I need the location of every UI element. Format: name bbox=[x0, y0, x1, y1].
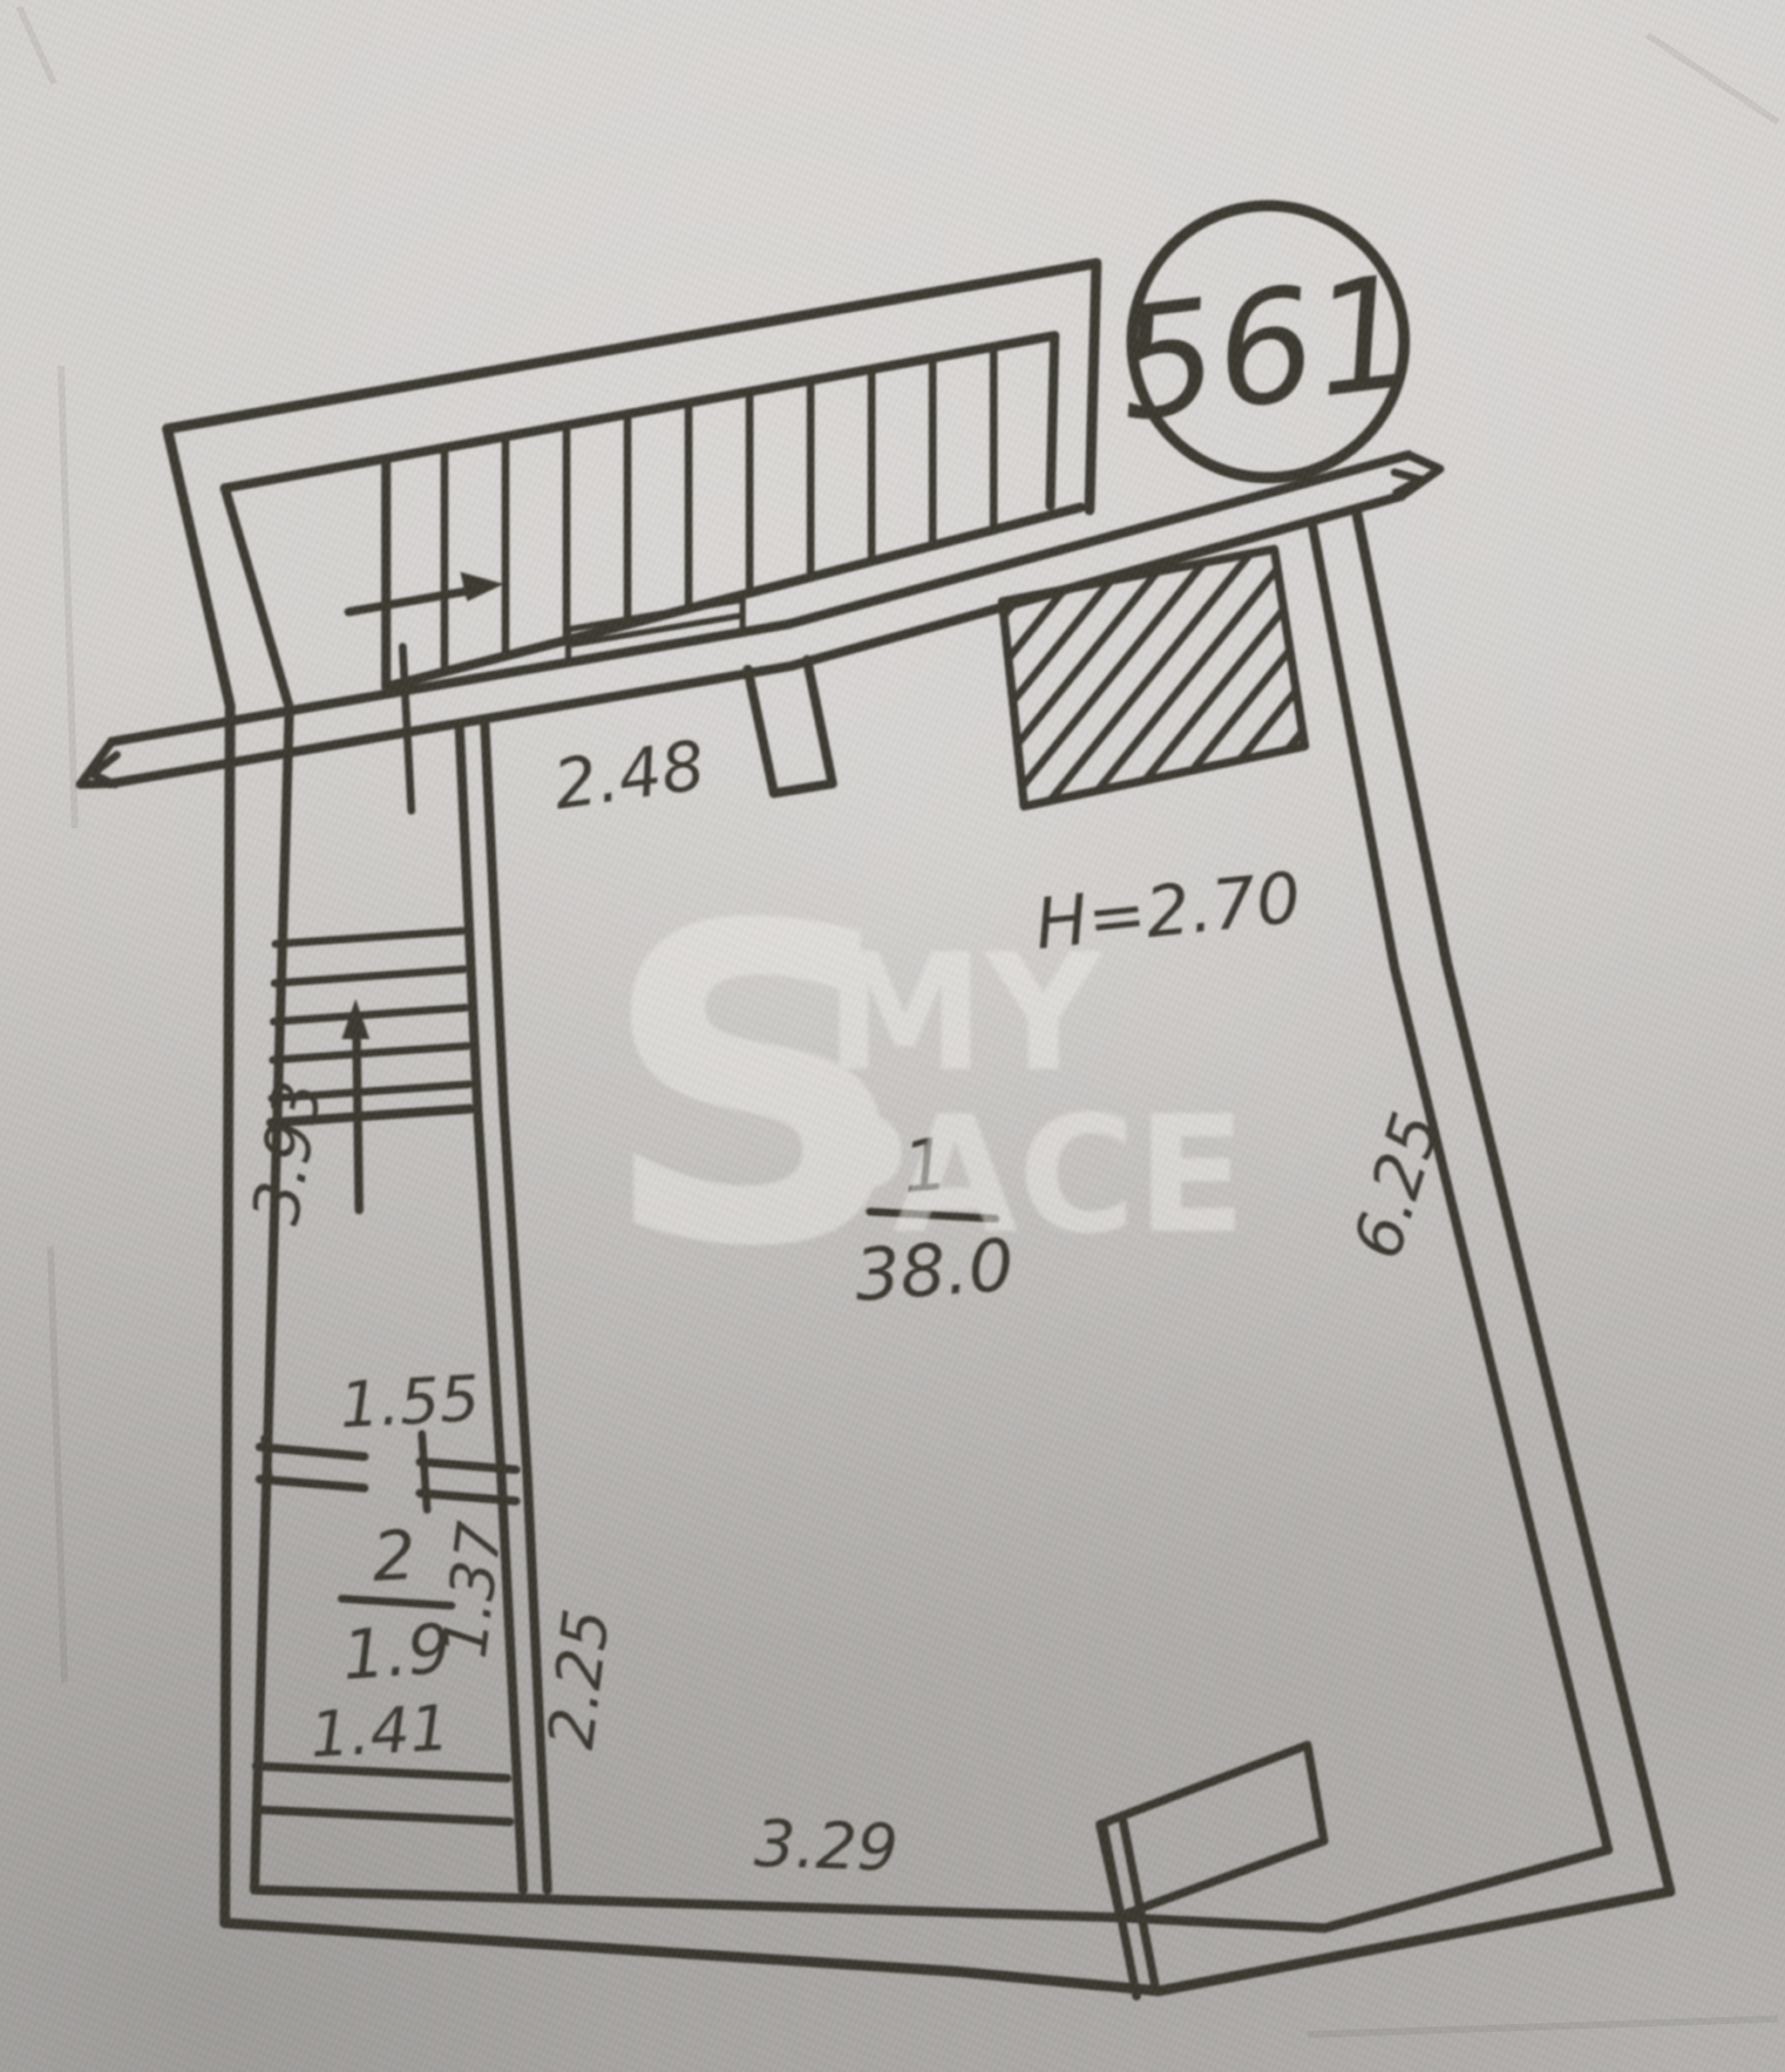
unit-number: 561 bbox=[1108, 241, 1423, 457]
closet-top-dimension-label: 1.55 bbox=[338, 1362, 481, 1442]
closet-door-tick bbox=[422, 1434, 427, 1510]
stair-dimension-label: 3.93 bbox=[238, 1075, 336, 1229]
wall-break-icon-left bbox=[80, 742, 117, 785]
hatched-shaft bbox=[811, 532, 1543, 854]
closet-outer-depth-label: 2.25 bbox=[534, 1605, 624, 1752]
door-leaf bbox=[1100, 1745, 1324, 1996]
dimension-tick bbox=[403, 647, 411, 811]
entry-dimension-label: 2.48 bbox=[549, 726, 710, 825]
right-arrow-icon bbox=[349, 572, 504, 612]
room2-number: 2 bbox=[370, 1517, 417, 1597]
closet-inner-depth-label: 1.37 bbox=[429, 1518, 516, 1662]
closet-bottom-dimension-label: 1.41 bbox=[309, 1691, 451, 1771]
upper-flight-rail bbox=[386, 507, 1081, 687]
floorplan-drawing: 2.48 H=2.70 3.93 6.25 3.29 1 38.0 2 1.9 … bbox=[0, 0, 1785, 2072]
bottom-wall-dimension-label: 3.29 bbox=[753, 1806, 899, 1886]
watermark-line2: PACE bbox=[790, 1081, 1246, 1269]
entry-partition-wall bbox=[748, 660, 832, 793]
unit-bottom-wall bbox=[225, 1850, 1670, 1991]
watermark-line1: MY bbox=[825, 919, 1103, 1107]
right-wall-dimension-label: 6.25 bbox=[1338, 1104, 1456, 1267]
unit-number-badge: 561 bbox=[1108, 206, 1423, 478]
up-arrow-icon bbox=[342, 999, 370, 1210]
floorplan-photo: 2.48 H=2.70 3.93 6.25 3.29 1 38.0 2 1.9 … bbox=[0, 0, 1785, 2072]
